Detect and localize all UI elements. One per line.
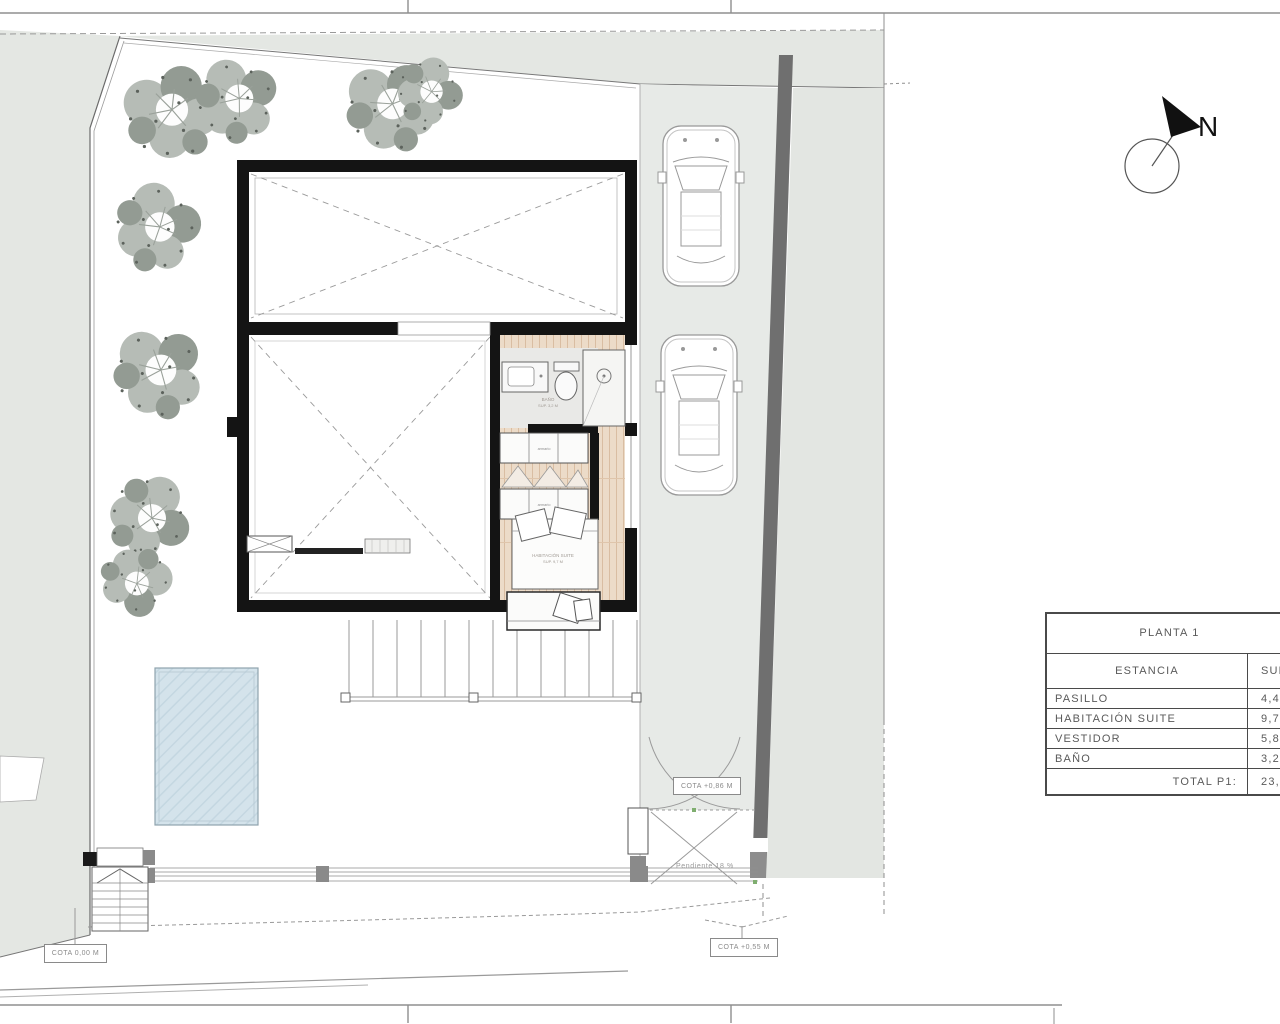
bath-area-label: SUP. 3,2 M xyxy=(538,403,558,408)
wardrobe-label-top: armario xyxy=(538,447,551,451)
gate-pivot-dot xyxy=(692,808,696,812)
areas-table: PLANTA 1 ESTANCIA SUPERFICIE PASILLO 4,4… xyxy=(1045,612,1280,796)
car-bottom xyxy=(656,335,742,495)
north-letter: N xyxy=(1198,111,1218,142)
room-area: 4,4 xyxy=(1248,689,1280,708)
house xyxy=(227,160,637,612)
room-name: PASILLO xyxy=(1047,689,1248,708)
site-left-verge xyxy=(0,30,124,957)
leader-lines xyxy=(75,908,788,944)
bed xyxy=(512,507,598,589)
table-header-row: ESTANCIA SUPERFICIE xyxy=(1047,654,1280,689)
bath-label: BAÑO xyxy=(542,396,555,402)
entrance-stairs xyxy=(92,867,148,931)
wall-opening xyxy=(398,322,490,335)
terrace-railing xyxy=(341,620,641,702)
car-top xyxy=(658,126,744,286)
room-name: BAÑO xyxy=(1047,749,1248,768)
table-row: BAÑO 3,2 xyxy=(1047,749,1280,769)
toilet-tank xyxy=(554,362,579,371)
room-area: 9,7 xyxy=(1248,709,1280,728)
bench xyxy=(507,592,600,630)
suite-area-label: SUP. 9,7 M xyxy=(543,559,563,564)
table-title-row: PLANTA 1 xyxy=(1047,614,1280,654)
table-row: VESTIDOR 5,8 xyxy=(1047,729,1280,749)
toilet xyxy=(555,372,577,400)
total-value: 23, xyxy=(1248,769,1280,794)
room-name: HABITACIÓN SUITE xyxy=(1047,709,1248,728)
wall-gap xyxy=(751,838,768,852)
col-room-header: ESTANCIA xyxy=(1047,654,1248,688)
col-area-header: SUPERFICIE xyxy=(1248,654,1280,688)
windows xyxy=(625,345,637,528)
pergola-band xyxy=(83,848,758,883)
north-arrow-icon: N xyxy=(1125,96,1218,193)
plan-drawing: N BAÑO SUP. 3,2 M HABITACIÓN SUITE SUP. … xyxy=(0,0,1280,1024)
room-area: 3,2 xyxy=(1248,749,1280,768)
table-row: PASILLO 4,4 xyxy=(1047,689,1280,709)
pool xyxy=(155,668,258,825)
room-area: 5,8 xyxy=(1248,729,1280,748)
table-total-row: TOTAL P1: 23, xyxy=(1047,769,1280,794)
suite-label: HABITACIÓN SUITE xyxy=(532,552,574,558)
cota-ground-label: COTA 0,00 M xyxy=(44,944,107,963)
wardrobe-label-bottom: armario xyxy=(538,503,551,507)
room-name: VESTIDOR xyxy=(1047,729,1248,748)
cota-gate-label: COTA +0,86 M xyxy=(673,777,741,795)
total-label: TOTAL P1: xyxy=(1047,769,1248,794)
cota-street-label: COTA +0,55 M xyxy=(710,938,778,957)
table-title: PLANTA 1 xyxy=(1047,627,1280,639)
floor-plan-sheet: N BAÑO SUP. 3,2 M HABITACIÓN SUITE SUP. … xyxy=(0,0,1280,1024)
table-row: HABITACIÓN SUITE 9,7 xyxy=(1047,709,1280,729)
shower xyxy=(583,350,625,426)
slope-note: Pendiente 18 % xyxy=(676,863,734,870)
